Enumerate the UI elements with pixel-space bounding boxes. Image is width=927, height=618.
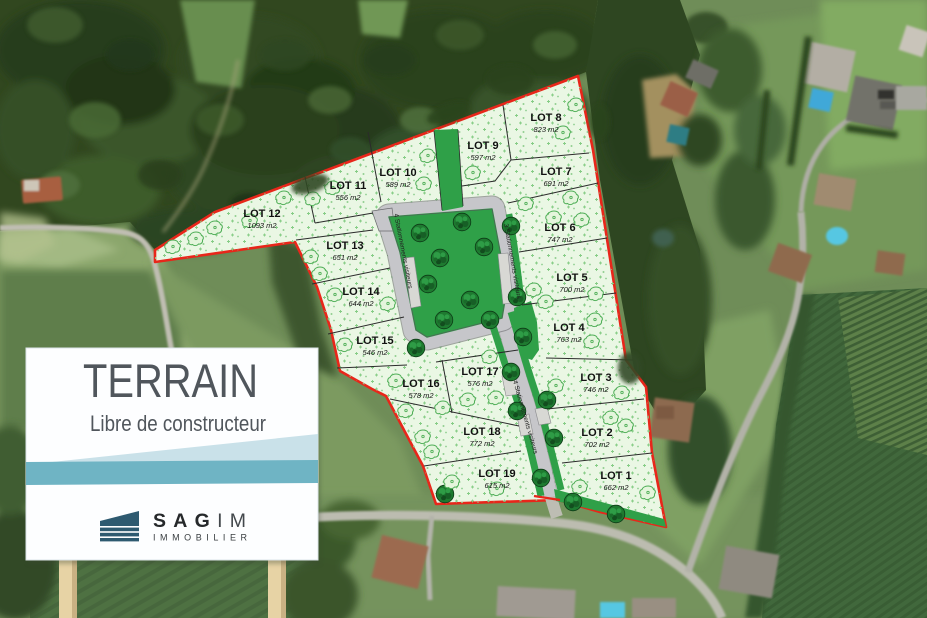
svg-text:LOT 8: LOT 8 xyxy=(530,112,561,124)
svg-text:1093 m2: 1093 m2 xyxy=(247,221,277,230)
svg-text:589 m2: 589 m2 xyxy=(385,180,411,189)
svg-text:LOT 2: LOT 2 xyxy=(581,427,612,439)
svg-text:LOT 14: LOT 14 xyxy=(342,286,380,298)
svg-text:644 m2: 644 m2 xyxy=(348,299,374,308)
svg-text:LOT 4: LOT 4 xyxy=(553,322,585,334)
svg-text:702 m2: 702 m2 xyxy=(584,440,610,449)
svg-text:747 m2: 747 m2 xyxy=(547,235,573,244)
svg-text:LOT 1: LOT 1 xyxy=(600,470,631,482)
svg-text:662 m2: 662 m2 xyxy=(603,483,629,492)
svg-text:IMMOBILIER: IMMOBILIER xyxy=(153,533,248,543)
svg-text:546 m2: 546 m2 xyxy=(362,348,388,357)
svg-text:746 m2: 746 m2 xyxy=(583,385,609,394)
svg-text:LOT 5: LOT 5 xyxy=(556,272,587,284)
svg-text:LOT 18: LOT 18 xyxy=(463,426,500,438)
svg-text:763 m2: 763 m2 xyxy=(556,335,582,344)
svg-text:LOT 12: LOT 12 xyxy=(243,208,280,220)
svg-text:LOT 17: LOT 17 xyxy=(461,366,498,378)
svg-text:LOT 16: LOT 16 xyxy=(402,378,439,390)
svg-text:700 m2: 700 m2 xyxy=(559,285,585,294)
svg-text:691 m2: 691 m2 xyxy=(543,179,569,188)
svg-text:772 m2: 772 m2 xyxy=(469,439,495,448)
svg-text:Libre de constructeur: Libre de constructeur xyxy=(90,411,266,436)
svg-text:LOT 6: LOT 6 xyxy=(544,222,575,234)
svg-text:556 m2: 556 m2 xyxy=(335,193,361,202)
svg-text:TERRAIN: TERRAIN xyxy=(83,354,258,407)
svg-text:LOT 11: LOT 11 xyxy=(330,180,367,192)
svg-text:LOT 3: LOT 3 xyxy=(580,372,611,384)
svg-text:823 m2: 823 m2 xyxy=(533,125,559,134)
svg-text:LOT 7: LOT 7 xyxy=(540,166,571,178)
svg-text:LOT 19: LOT 19 xyxy=(478,468,515,480)
svg-text:597 m2: 597 m2 xyxy=(470,153,496,162)
svg-text:615 m2: 615 m2 xyxy=(484,481,510,490)
svg-text:LOT 9: LOT 9 xyxy=(467,140,498,152)
svg-text:576 m2: 576 m2 xyxy=(467,379,493,388)
svg-text:LOT 10: LOT 10 xyxy=(379,167,416,179)
svg-text:651 m2: 651 m2 xyxy=(332,253,358,262)
svg-text:578 m2: 578 m2 xyxy=(408,391,434,400)
svg-text:LOT 15: LOT 15 xyxy=(356,335,393,347)
svg-text:LOT 13: LOT 13 xyxy=(326,240,363,252)
